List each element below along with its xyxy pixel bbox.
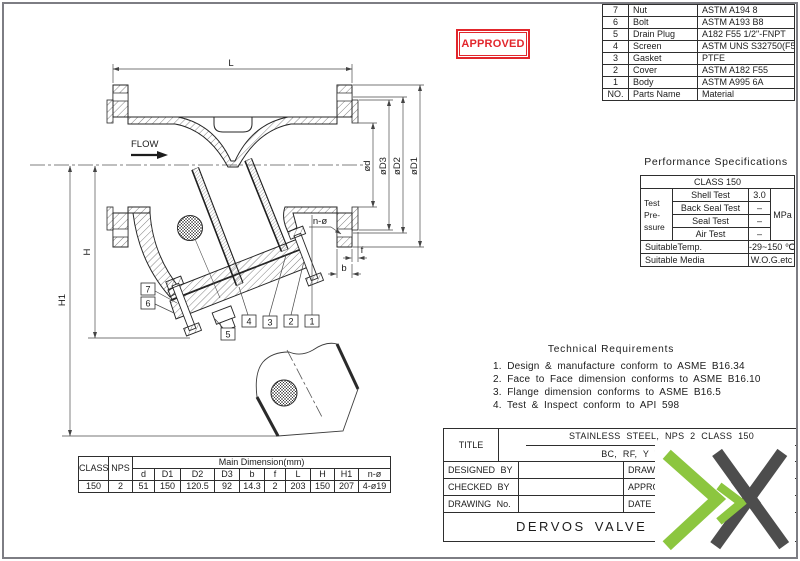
dim-label-D3: øD3 [378, 157, 389, 175]
dim-label-n: n-ø [313, 216, 327, 227]
pressure-unit: MPa [771, 189, 795, 241]
part-label-2: 2 [288, 317, 293, 327]
table-row: NO.Parts NameMaterial [603, 89, 795, 101]
part-material: PTFE [698, 53, 795, 65]
flow-arrow-icon [157, 151, 168, 159]
part-label-7: 7 [145, 285, 150, 295]
flow-indicator: FLOW [131, 139, 168, 159]
dim-value: 2 [265, 481, 286, 493]
part-no: 5 [603, 29, 629, 41]
class-header: CLASS 150 [641, 176, 795, 189]
screen-detail-view [256, 343, 358, 436]
part-name: Bolt [629, 17, 698, 29]
dim-value: 203 [286, 481, 311, 493]
part-no: 1 [603, 77, 629, 89]
part-name: Drain Plug [629, 29, 698, 41]
part-no: 3 [603, 53, 629, 65]
dim-value: 120.5 [181, 481, 215, 493]
test-name: Back Seal Test [673, 202, 749, 215]
table-row: CLASS 150 [641, 176, 795, 189]
dim-value: 51 [133, 481, 155, 493]
technical-requirement-item: 4. Test & Inspect conform to API 598 [446, 399, 776, 412]
drawing-no-label: DRAWING No. [444, 496, 519, 513]
main-dimension-table: CLASS NPS Main Dimension(mm) d D1 D2 D3 … [78, 456, 391, 493]
table-row: SuitableTemp.-29~150 ℃ [641, 241, 795, 254]
right-flange [337, 85, 358, 247]
designed-by-label: DESIGNED BY [444, 462, 519, 479]
bottom-wall-right [284, 207, 337, 232]
performance-table: CLASS 150 Test Pre- ssure Shell Test 3.0… [640, 175, 795, 267]
test-name: Air Test [673, 228, 749, 241]
table-row: 6BoltASTM A193 B8 [603, 17, 795, 29]
parts-list-table: 7NutASTM A194 8 6BoltASTM A193 B8 5Drain… [602, 4, 795, 101]
checked-by-label: CHECKED BY [444, 479, 519, 496]
part-label-3: 3 [267, 318, 272, 328]
checked-by-value [519, 479, 624, 496]
part-name: Body [629, 77, 698, 89]
test-value: – [749, 228, 771, 241]
col-header: H1 [335, 469, 359, 481]
table-row: 1BodyASTM A995 6A [603, 77, 795, 89]
table-row: 4ScreenASTM UNS S32750(F53) [603, 41, 795, 53]
title-label: TITLE [444, 429, 499, 462]
temp-value: -29~150 ℃ [749, 241, 795, 254]
part-label-5: 5 [225, 330, 230, 340]
table-row: Suitable MediaW.O.G.etc [641, 254, 795, 267]
dim-label-H1: H1 [57, 294, 68, 306]
dim-value: 14.3 [240, 481, 265, 493]
part-label-1: 1 [309, 317, 314, 327]
part-name: Cover [629, 65, 698, 77]
part-name: Parts Name [629, 89, 698, 101]
table-row: 2CoverASTM A182 F55 [603, 65, 795, 77]
table-row: CLASS NPS Main Dimension(mm) [79, 457, 391, 469]
nps-value: 2 [109, 481, 133, 493]
left-flange [107, 85, 128, 247]
media-value: W.O.G.etc [749, 254, 795, 267]
part-material: ASTM A193 B8 [698, 17, 795, 29]
col-header: D2 [181, 469, 215, 481]
table-row: 7NutASTM A194 8 [603, 5, 795, 17]
dim-label-f: f [361, 245, 364, 256]
approved-stamp: APPROVED [456, 29, 530, 59]
part-name: Gasket [629, 53, 698, 65]
flow-label: FLOW [131, 139, 158, 150]
part-no: 4 [603, 41, 629, 53]
table-row: Test Pre- ssure Shell Test 3.0 MPa [641, 189, 795, 202]
part-name: Screen [629, 41, 698, 53]
dimension-group-header: Main Dimension(mm) [133, 457, 391, 469]
designed-by-value [519, 462, 624, 479]
detail-mesh [271, 380, 297, 406]
screen-mesh-view [178, 216, 203, 241]
test-name: Seal Test [673, 215, 749, 228]
part-material: Material [698, 89, 795, 101]
col-header: D1 [155, 469, 181, 481]
part-material: ASTM UNS S32750(F53) [698, 41, 795, 53]
test-pressure-label: Test Pre- ssure [641, 189, 673, 241]
part-no: 7 [603, 5, 629, 17]
part-material: A182 F55 1/2"-FNPT [698, 29, 795, 41]
dim-label-D1: øD1 [409, 157, 420, 175]
class-label: CLASS [79, 457, 109, 481]
dim-label-b: b [341, 263, 346, 274]
col-header: d [133, 469, 155, 481]
col-header: D3 [215, 469, 240, 481]
class-value: 150 [79, 481, 109, 493]
table-row: 3GasketPTFE [603, 53, 795, 65]
part-material: ASTM A194 8 [698, 5, 795, 17]
col-header: f [265, 469, 286, 481]
part-name: Nut [629, 5, 698, 17]
performance-title: Performance Specifications [633, 156, 799, 168]
col-header: H [311, 469, 335, 481]
dim-value: 150 [155, 481, 181, 493]
technical-requirements-title: Technical Requirements [446, 344, 776, 355]
approved-stamp-text: APPROVED [461, 38, 524, 50]
table-row: 5Drain PlugA182 F55 1/2"-FNPT [603, 29, 795, 41]
technical-requirement-item: 1. Design & manufacture conform to ASME … [446, 360, 776, 373]
part-no: 2 [603, 65, 629, 77]
technical-requirement-item: 3. Flange dimension conforms to ASME B16… [446, 386, 776, 399]
media-label: Suitable Media [641, 254, 749, 267]
drawing-no-value [519, 496, 624, 513]
company-logo [655, 443, 795, 557]
technical-requirements: Technical Requirements 1. Design & manuf… [446, 344, 776, 412]
table-row: 150 2 51 150 120.5 92 14.3 2 203 150 207… [79, 481, 391, 493]
col-header: b [240, 469, 265, 481]
part-material: ASTM A182 F55 [698, 65, 795, 77]
col-header: L [286, 469, 311, 481]
test-value: 3.0 [749, 189, 771, 202]
top-boss [214, 117, 252, 132]
part-no: NO. [603, 89, 629, 101]
temp-label: SuitableTemp. [641, 241, 749, 254]
part-label-4: 4 [246, 317, 251, 327]
dim-label-D2: øD2 [392, 157, 403, 175]
nps-label: NPS [109, 457, 133, 481]
dim-label-d: ød [362, 160, 373, 171]
part-label-6: 6 [145, 299, 150, 309]
part-material: ASTM A995 6A [698, 77, 795, 89]
part-no: 6 [603, 17, 629, 29]
test-value: – [749, 215, 771, 228]
col-header: n-ø [359, 469, 391, 481]
dim-value: 4-ø19 [359, 481, 391, 493]
technical-requirement-item: 2. Face to Face dimension conforms to AS… [446, 373, 776, 386]
x-logo-icon [657, 445, 793, 555]
dim-label-L: L [228, 58, 233, 69]
dim-value: 207 [335, 481, 359, 493]
dim-value: 150 [311, 481, 335, 493]
dim-value: 92 [215, 481, 240, 493]
test-name: Shell Test [673, 189, 749, 202]
test-value: – [749, 202, 771, 215]
dim-label-H: H [82, 248, 93, 255]
